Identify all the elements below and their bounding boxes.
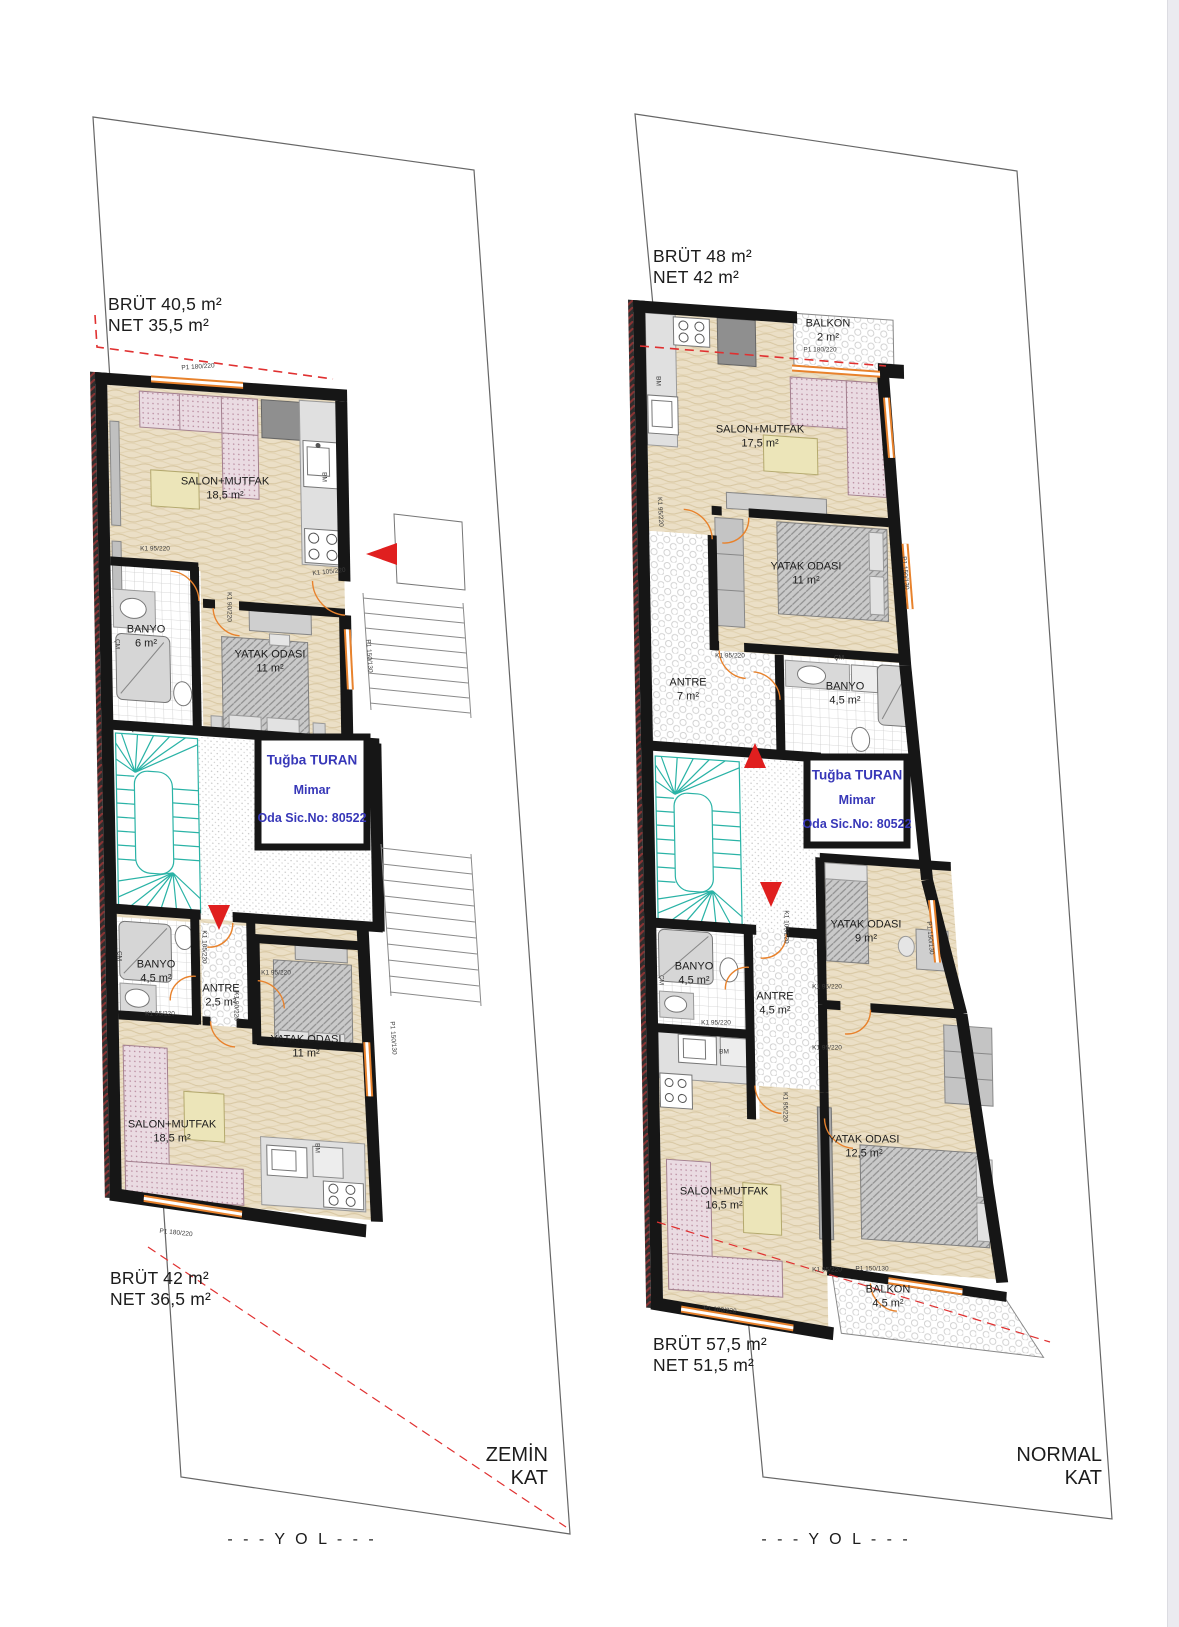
architect-stamp-reg: Oda Sic.No: 80522: [257, 811, 366, 825]
dim-tag: ÇM: [834, 655, 844, 662]
dim-tag: K1 105/220: [783, 910, 790, 943]
dim-tag: K1 95/220: [701, 1020, 731, 1027]
dim-tag: BM: [719, 1049, 729, 1056]
room-label-salon175: SALON+MUTFAK 17,5 m²: [716, 423, 804, 452]
left-area-bottom: BRÜT 42 m² NET 36,5 m²: [110, 1268, 211, 1311]
right-area-bottom: BRÜT 57,5 m² NET 51,5 m²: [653, 1334, 767, 1377]
dim-tag: K1 95/220: [812, 984, 842, 991]
room-label-yatak9: YATAK ODASI 9 m²: [831, 918, 902, 947]
left-area-top: BRÜT 40,5 m² NET 35,5 m²: [108, 294, 222, 337]
room-label-banyo45-low-right: BANYO 4,5 m²: [675, 960, 714, 989]
dim-tag: K1 95/220: [782, 1092, 789, 1122]
room-label-salon165: SALON+MUTFAK 16,5 m²: [680, 1185, 768, 1214]
room-label-yatak-low-left: YATAK ODASI 11 m²: [271, 1033, 342, 1062]
left-road-label: - - - Y O L - - -: [227, 1531, 376, 1549]
dim-tag: ÇM: [658, 975, 665, 985]
architect-stamp-name: Tuğba TURAN: [267, 753, 358, 768]
room-label-balkon45: BALKON 4,5 m²: [866, 1283, 911, 1312]
room-label-salon-top-left: SALON+MUTFAK 18,5 m²: [181, 475, 269, 504]
dim-tag: P1 180/220: [803, 347, 836, 354]
dim-tag: ÇM: [116, 951, 123, 961]
right-road-label: - - - Y O L - - -: [761, 1531, 910, 1549]
dim-tag: ÇM: [114, 639, 121, 649]
architect-stamp-title-right: Mimar: [839, 793, 876, 807]
dim-tag: K1 95/220: [715, 653, 745, 660]
dim-tag: K1 90/220: [233, 991, 240, 1021]
dim-tag: BM: [314, 1143, 321, 1153]
floor-plan-page: BRÜT 40,5 m² NET 35,5 m² SALON+MUTFAK 18…: [0, 0, 1179, 1627]
dim-tag: BM: [321, 472, 328, 482]
dim-tag: BM: [655, 376, 662, 386]
dim-tag: P1 150/130: [855, 1266, 888, 1273]
architect-stamp-title: Mimar: [294, 783, 331, 797]
dim-tag: K1 95/220: [656, 497, 665, 527]
room-label-banyo45-up-right: BANYO 4,5 m²: [826, 680, 865, 709]
right-area-top: BRÜT 48 m² NET 42 m²: [653, 246, 752, 289]
room-label-banyo6: BANYO 6 m²: [127, 623, 166, 652]
room-label-salon-low-left: SALON+MUTFAK 18,5 m²: [128, 1118, 216, 1147]
dim-tag: K1 90/220: [226, 592, 233, 622]
room-label-antre45: ANTRE 4,5 m²: [756, 990, 793, 1019]
dim-tag: K1 95/220: [812, 1045, 842, 1052]
room-label-balkon2: BALKON 2 m²: [806, 317, 851, 346]
dim-tag: K1 105/220: [201, 930, 208, 963]
dim-tag: K1 95/220: [261, 970, 291, 977]
page-edge-strip: [1167, 0, 1179, 1627]
room-label-antre7: ANTRE 7 m²: [669, 676, 706, 705]
right-floor-label: NORMAL KAT: [1016, 1444, 1102, 1490]
architect-stamp-name-right: Tuğba TURAN: [812, 768, 903, 783]
dim-tag: K1 95/220: [145, 1011, 175, 1018]
floor-plan-drawing: [0, 0, 1179, 1627]
room-label-yatak11-right: YATAK ODASI 11 m²: [771, 560, 842, 589]
room-label-yatak125: YATAK ODASI 12,5 m²: [829, 1133, 900, 1162]
left-floor-label: ZEMİN KAT: [486, 1444, 548, 1490]
dim-tag: K1 95/220: [812, 1267, 842, 1274]
dim-tag: K1 95/220: [140, 546, 170, 553]
room-label-banyo45-left: BANYO 4,5 m²: [137, 958, 176, 987]
architect-stamp-reg-right: Oda Sic.No: 80522: [802, 817, 911, 831]
room-label-yatak-top-left: YATAK ODASI 11 m²: [235, 648, 306, 677]
